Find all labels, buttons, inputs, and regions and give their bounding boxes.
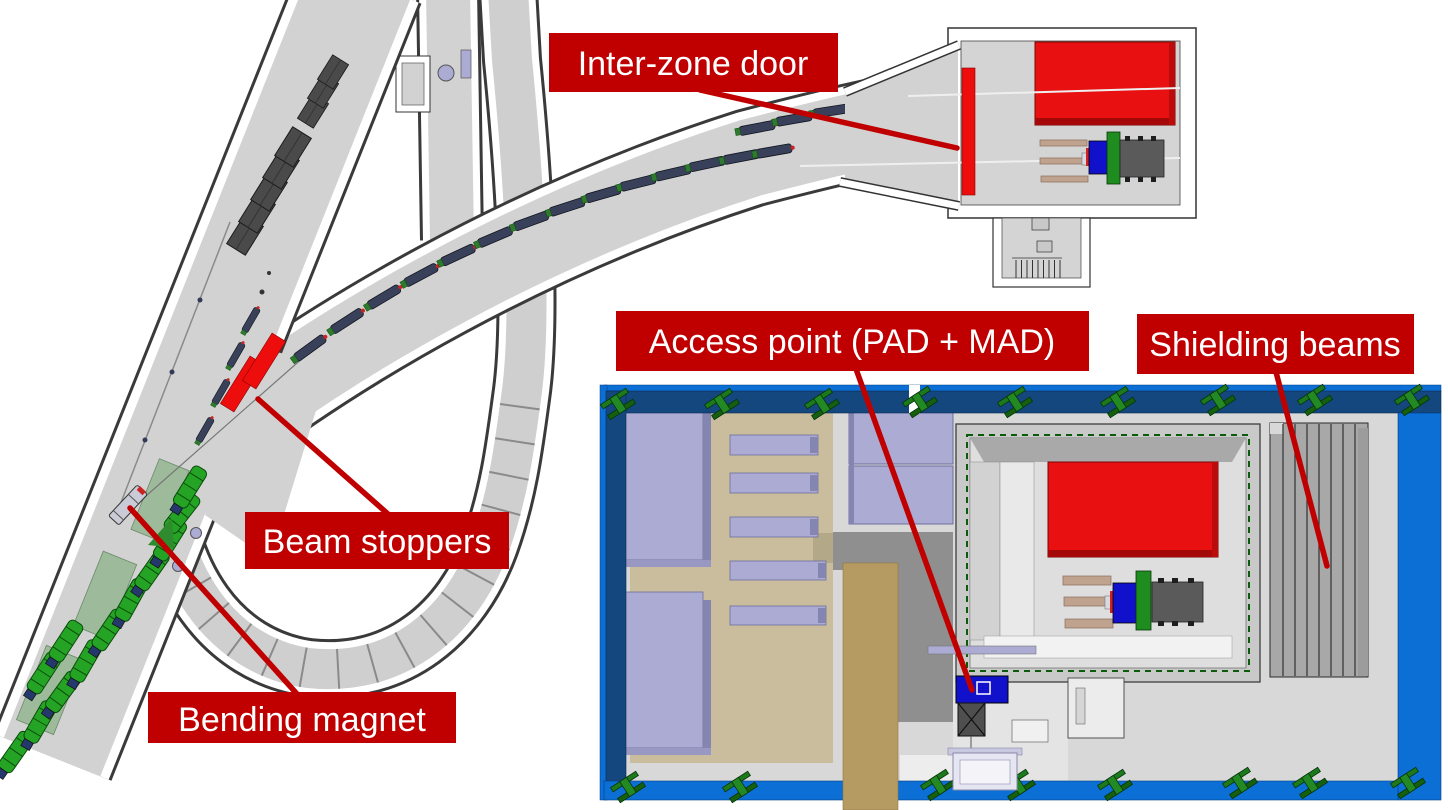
label-text-beam-stoppers: Beam stoppers xyxy=(263,523,492,561)
annex-stairs xyxy=(993,218,1090,287)
pillar xyxy=(438,65,454,81)
right-wall xyxy=(1398,413,1441,800)
storage-block-2 xyxy=(621,592,711,755)
label-text-inter-zone-door: Inter-zone door xyxy=(578,45,809,83)
label-beam-stoppers: Beam stoppers xyxy=(245,512,509,569)
storage-block-1 xyxy=(621,402,711,567)
red-shield-block xyxy=(1035,42,1175,125)
label-text-shielding-beams: Shielding beams xyxy=(1149,326,1400,364)
red-shield-block-2 xyxy=(1048,462,1218,557)
floorplan-room xyxy=(600,384,1441,810)
left-wall xyxy=(606,391,626,782)
cabinet-boxes xyxy=(849,404,953,524)
inter-zone-door xyxy=(962,68,975,195)
label-inter-zone-door: Inter-zone door xyxy=(549,33,838,92)
shielding-beams xyxy=(1270,423,1368,677)
label-access-point: Access point (PAD + MAD) xyxy=(616,311,1089,371)
label-text-bending-magnet: Bending magnet xyxy=(178,701,426,739)
upper-zone-room xyxy=(800,28,1196,287)
facility-layout-diagram: Inter-zone door Access point (PAD + MAD)… xyxy=(0,0,1448,810)
label-shielding-beams: Shielding beams xyxy=(1137,314,1414,374)
pad-box xyxy=(956,676,1008,703)
label-text-access-point: Access point (PAD + MAD) xyxy=(649,323,1056,361)
khaki-strip xyxy=(843,563,898,810)
facility-cad-plan: Inter-zone door Access point (PAD + MAD)… xyxy=(0,0,1448,810)
label-bending-magnet: Bending magnet xyxy=(148,692,456,743)
experimental-enclosure xyxy=(956,424,1260,682)
